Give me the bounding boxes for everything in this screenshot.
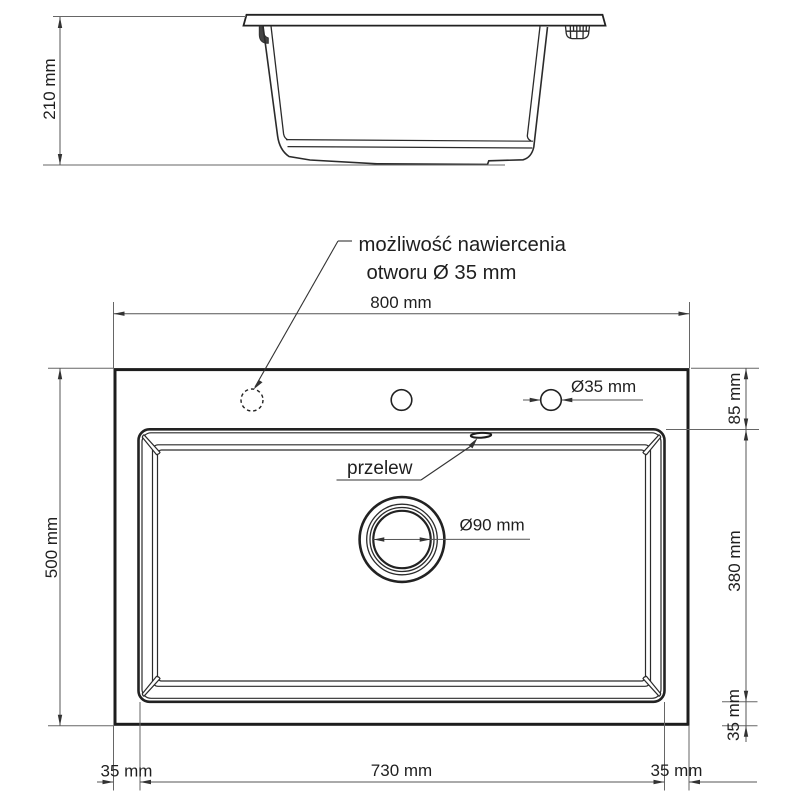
svg-text:otworu Ø 35 mm: otworu Ø 35 mm [367,262,517,284]
svg-text:500 mm: 500 mm [42,517,61,578]
svg-text:85 mm: 85 mm [725,373,744,425]
svg-text:730 mm: 730 mm [371,761,432,780]
svg-text:800 mm: 800 mm [370,293,431,312]
svg-text:35 mm: 35 mm [101,762,153,781]
svg-text:35 mm: 35 mm [651,761,703,780]
svg-text:możliwość nawiercenia: możliwość nawiercenia [359,234,567,256]
svg-text:przelew: przelew [347,458,413,479]
svg-text:380 mm: 380 mm [725,530,744,591]
svg-text:210 mm: 210 mm [40,58,59,119]
svg-text:Ø90 mm: Ø90 mm [460,516,525,535]
svg-text:Ø35 mm: Ø35 mm [571,377,636,396]
svg-text:35 mm: 35 mm [724,689,743,741]
